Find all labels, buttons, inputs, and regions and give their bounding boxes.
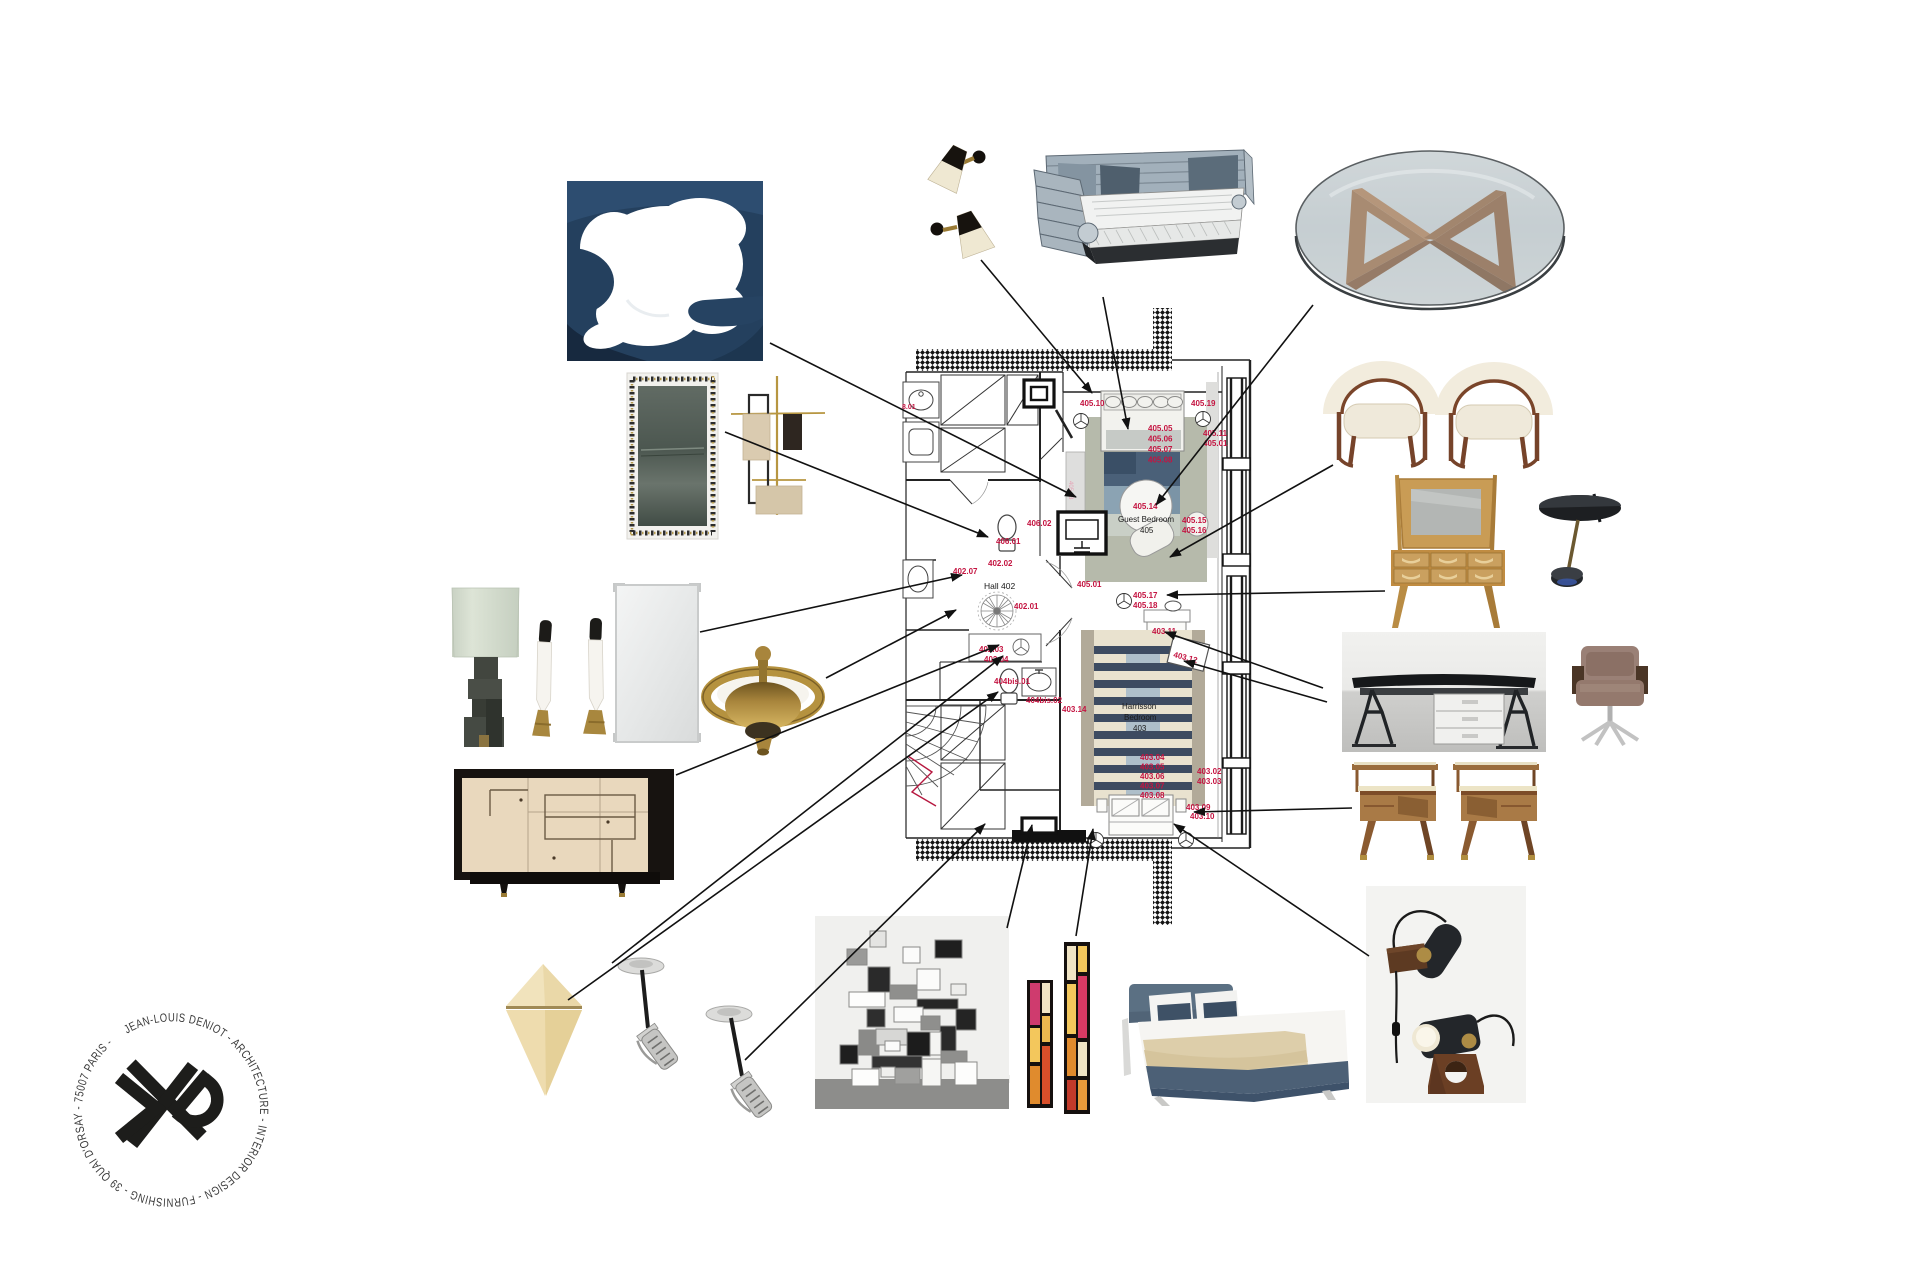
svg-text:403.04: 403.04	[1140, 753, 1165, 762]
svg-text:Hall 402: Hall 402	[984, 581, 1015, 591]
svg-text:405.01: 405.01	[1077, 580, 1102, 589]
svg-text:403.09: 403.09	[1186, 803, 1211, 812]
svg-text:406.02: 406.02	[1027, 519, 1052, 528]
svg-text:406.01: 406.01	[996, 537, 1021, 546]
svg-text:Harrisson: Harrisson	[1122, 702, 1156, 711]
svg-text:405.08: 405.08	[1148, 456, 1173, 465]
svg-text:405.05: 405.05	[1148, 424, 1173, 433]
svg-text:Guest Bedroom: Guest Bedroom	[1118, 515, 1174, 524]
svg-text:405.18: 405.18	[1133, 601, 1158, 610]
svg-text:403.07: 403.07	[1140, 782, 1165, 791]
svg-text:405.14: 405.14	[1133, 502, 1158, 511]
svg-text:402.03: 402.03	[979, 645, 1004, 654]
svg-text:405.15: 405.15	[1182, 516, 1207, 525]
svg-text:402.04: 402.04	[984, 655, 1009, 664]
svg-text:403: 403	[1133, 724, 1147, 733]
svg-text:403.06: 403.06	[1140, 772, 1165, 781]
svg-text:402.01: 402.01	[1014, 602, 1039, 611]
svg-text:403.02: 403.02	[1197, 767, 1222, 776]
svg-text:405: 405	[1140, 526, 1154, 535]
svg-text:403.08: 403.08	[1140, 791, 1165, 800]
svg-text:403.05: 403.05	[1140, 763, 1165, 772]
svg-text:405.06: 405.06	[1148, 435, 1173, 444]
svg-text:403.10: 403.10	[1190, 812, 1215, 821]
svg-text:403.03: 403.03	[1197, 777, 1222, 786]
svg-text:402.07: 402.07	[953, 567, 978, 576]
svg-text:405.17: 405.17	[1133, 591, 1158, 600]
svg-text:405.16: 405.16	[1182, 526, 1207, 535]
svg-text:402.02: 402.02	[988, 559, 1013, 568]
svg-text:405.13: 405.13	[1067, 481, 1073, 500]
svg-text:404bis.01: 404bis.01	[994, 677, 1031, 686]
svg-text:405.10: 405.10	[1080, 399, 1105, 408]
svg-text:405.19: 405.19	[1191, 399, 1216, 408]
svg-text:Bedroom: Bedroom	[1124, 713, 1157, 722]
svg-text:404bis.02: 404bis.02	[1026, 696, 1063, 705]
svg-text:405.07: 405.07	[1148, 445, 1173, 454]
svg-text:403.14: 403.14	[1062, 705, 1087, 714]
